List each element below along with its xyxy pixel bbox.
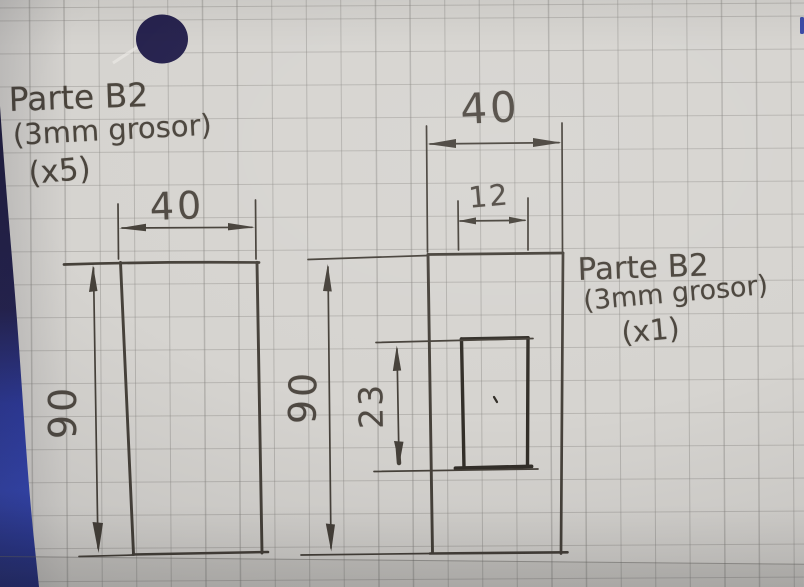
right-slot-width-dimension: 12 bbox=[467, 177, 511, 214]
right-part-slot-outline bbox=[456, 338, 532, 469]
hole-punch-dot bbox=[136, 15, 188, 64]
left-part-dimension-lines bbox=[79, 200, 256, 557]
right-slot-height-dimension: 23 bbox=[351, 383, 391, 430]
left-part-quantity: (x5) bbox=[27, 151, 92, 192]
right-part-outline bbox=[428, 253, 568, 554]
right-height-dimension: 90 bbox=[281, 369, 326, 424]
right-width-dimension: 40 bbox=[459, 82, 521, 134]
right-part-quantity: (x1) bbox=[620, 311, 681, 350]
left-width-dimension: 40 bbox=[149, 183, 205, 229]
hand-drawn-sketch-photo: Parte B2 (3mm grosor) (x5) 40 90 40 12 9… bbox=[0, 0, 804, 587]
paper-scratch bbox=[113, 46, 139, 63]
blue-edge-speck bbox=[800, 17, 804, 34]
left-height-dimension: 90 bbox=[41, 385, 85, 439]
